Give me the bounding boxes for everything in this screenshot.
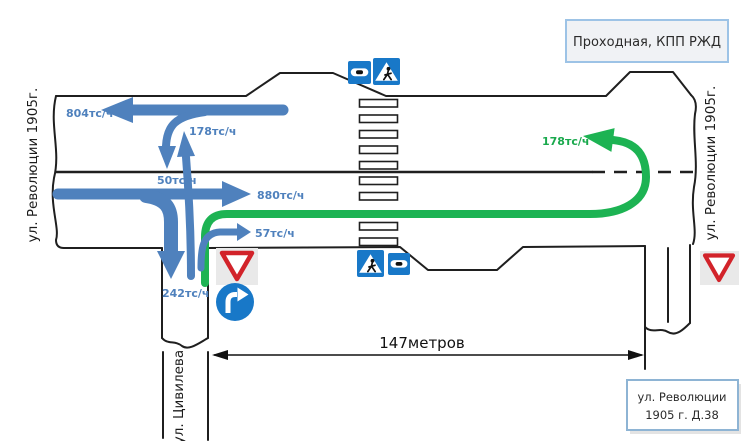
- yield-sign-left: [216, 248, 258, 285]
- flow-label-804: 804тс/ч: [66, 107, 113, 120]
- pedestrian-crossing-sign-top: [373, 58, 400, 85]
- diagram-canvas: 804тс/ч 178тс/ч 50тс/ч 880тс/ч 57тс/ч 24…: [0, 0, 742, 441]
- traffic-scheme-diagram: 804тс/ч 178тс/ч 50тс/ч 880тс/ч 57тс/ч 24…: [0, 0, 742, 441]
- side-street-break: [162, 338, 208, 348]
- flow-green-path: [205, 140, 646, 283]
- flow-label-50: 50тс/ч: [157, 174, 197, 187]
- callout-bottom-right-line2: 1905 г. Д.38: [645, 408, 719, 422]
- flow-west-through: [101, 97, 283, 123]
- street-label-left: ул. Революции 1905г.: [25, 88, 41, 243]
- yield-sign-right: [700, 251, 739, 285]
- callout-bottom-right-line1: ул. Революции: [637, 390, 726, 404]
- flow-label-880: 880тс/ч: [257, 189, 304, 202]
- speed-bump-mark: [356, 70, 363, 74]
- zebra-stripe: [360, 238, 398, 246]
- zebra-stripe: [360, 100, 398, 108]
- zebra-stripe: [360, 146, 398, 154]
- zebra-stripe: [360, 162, 398, 170]
- speed-bump-sign-top: [348, 61, 371, 84]
- flow-turn-into-side-arrowhead: [158, 146, 176, 169]
- zebra-stripe: [360, 223, 398, 231]
- callout-bottom-right-box: [627, 380, 738, 430]
- mandatory-right-turn-sign: [216, 283, 254, 321]
- callout-bottom-right: ул. Революции 1905 г. Д.38: [627, 380, 741, 434]
- road-right-break-edge: [691, 95, 696, 244]
- turn-right-circle: [216, 283, 254, 321]
- speed-bump-sign-bottom: [388, 253, 410, 275]
- road-bottom-edge-right: [208, 246, 645, 270]
- pedestrian-crossing-sign-bottom: [357, 250, 384, 277]
- dimension-arrowhead-right: [628, 350, 644, 360]
- flow-label-178-green: 178тс/ч: [542, 135, 589, 148]
- callout-top-right-text: Проходная, КПП РЖД: [573, 35, 721, 50]
- flow-green-u-turn: [205, 128, 646, 283]
- dimension-147m: 147метров: [212, 334, 644, 360]
- zebra-stripe: [360, 115, 398, 123]
- flow-into-side-street: [146, 196, 185, 279]
- flow-east-arrowhead: [222, 181, 251, 207]
- zebra-stripe: [360, 193, 398, 201]
- speed-bump-mark: [396, 262, 403, 266]
- dimension-label: 147метров: [379, 334, 464, 352]
- zebra-stripe: [360, 177, 398, 185]
- street-label-right: ул. Революции 1905г.: [703, 86, 719, 241]
- zebra-stripe: [360, 131, 398, 139]
- flow-label-57: 57тс/ч: [255, 227, 295, 240]
- flow-label-178-blue: 178тс/ч: [189, 125, 236, 138]
- street-label-bottom: ул. Цивилева: [171, 350, 187, 441]
- flow-label-242: 242тс/ч: [162, 287, 209, 300]
- flow-side-right-turn-arrowhead: [237, 223, 251, 241]
- callout-top-right: Проходная, КПП РЖД: [566, 20, 728, 62]
- driveway-break: [645, 323, 690, 334]
- flow-into-side-shaft: [146, 196, 171, 251]
- dimension-arrowhead-left: [212, 350, 228, 360]
